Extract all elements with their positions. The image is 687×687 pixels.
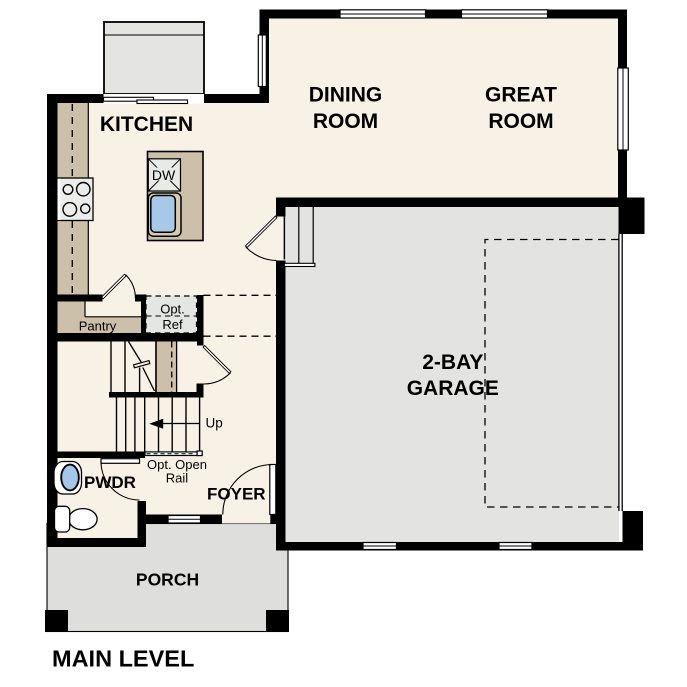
svg-text:PWDR: PWDR <box>84 473 136 492</box>
svg-text:ROOM: ROOM <box>313 110 378 133</box>
svg-text:Pantry: Pantry <box>79 319 117 334</box>
svg-text:MAIN LEVEL: MAIN LEVEL <box>52 646 194 672</box>
svg-text:Up: Up <box>206 416 223 431</box>
svg-text:PORCH: PORCH <box>136 570 199 590</box>
svg-text:Opt.: Opt. <box>160 302 185 317</box>
svg-text:DW: DW <box>152 167 176 183</box>
svg-text:FOYER: FOYER <box>207 485 266 504</box>
svg-text:Rail: Rail <box>166 471 189 486</box>
svg-text:Ref: Ref <box>162 317 183 332</box>
svg-text:2-BAY: 2-BAY <box>422 351 483 374</box>
svg-text:KITCHEN: KITCHEN <box>100 113 193 136</box>
svg-text:DINING: DINING <box>309 84 383 107</box>
svg-text:GARAGE: GARAGE <box>407 377 499 400</box>
svg-text:ROOM: ROOM <box>488 110 553 133</box>
svg-text:GREAT: GREAT <box>485 84 557 107</box>
